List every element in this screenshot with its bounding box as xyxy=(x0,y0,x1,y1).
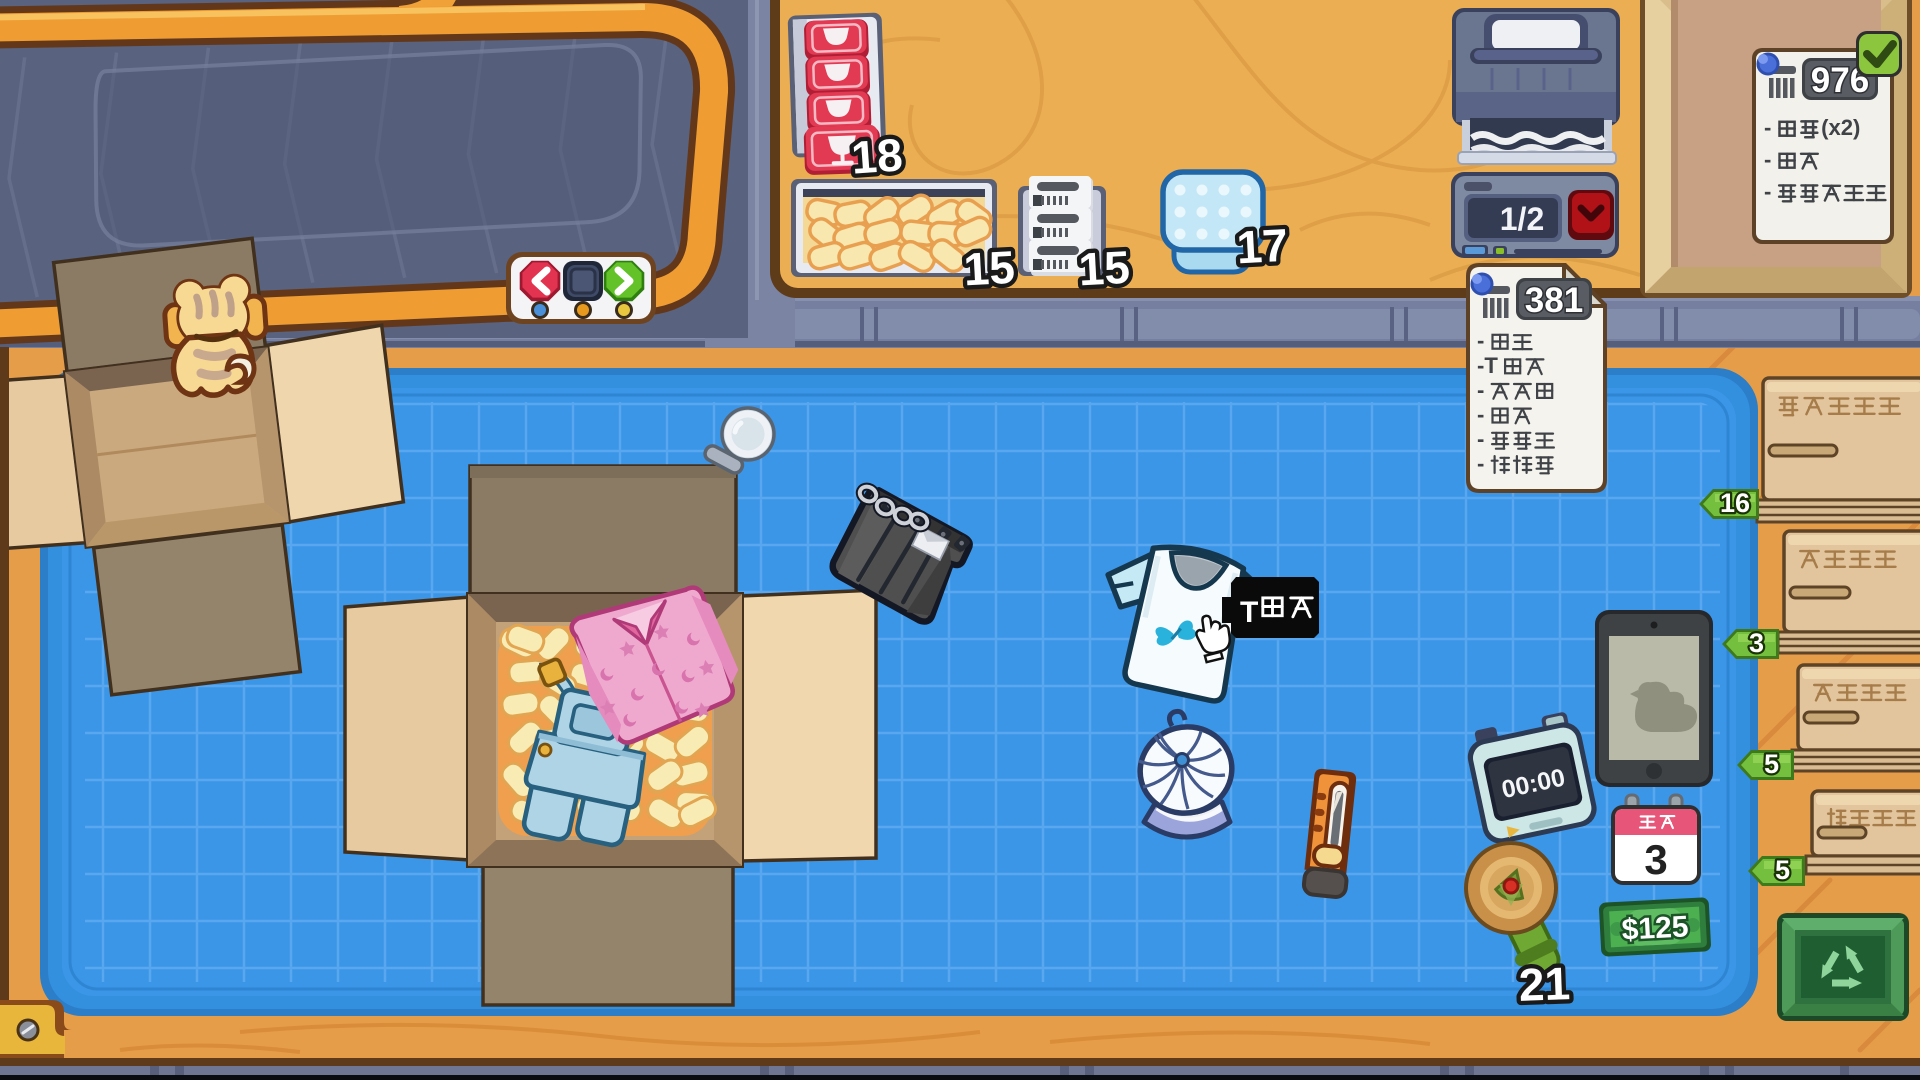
svg-text:-T: -T xyxy=(1477,353,1498,378)
svg-text:21: 21 xyxy=(1518,957,1571,1011)
svg-text:17: 17 xyxy=(1235,219,1289,274)
svg-text:-: - xyxy=(1764,179,1771,204)
svg-text:3: 3 xyxy=(1749,628,1764,658)
svg-text:5: 5 xyxy=(1775,855,1790,885)
svg-text:-: - xyxy=(1764,115,1771,140)
svg-text:16: 16 xyxy=(1720,488,1750,518)
svg-text:-: - xyxy=(1477,402,1484,427)
svg-text:-: - xyxy=(1477,451,1484,476)
svg-text:18: 18 xyxy=(850,128,905,183)
svg-text:$125: $125 xyxy=(1621,910,1689,946)
svg-text:3: 3 xyxy=(1644,836,1667,883)
svg-text:15: 15 xyxy=(962,241,1016,296)
svg-text:-: - xyxy=(1477,377,1484,402)
svg-text:381: 381 xyxy=(1525,281,1583,320)
svg-text:-: - xyxy=(1477,427,1484,452)
svg-text:-: - xyxy=(1477,328,1484,353)
svg-text:1/2: 1/2 xyxy=(1500,201,1544,237)
svg-text:15: 15 xyxy=(1077,241,1131,296)
svg-text:-: - xyxy=(1764,147,1771,172)
svg-text:(x2): (x2) xyxy=(1821,115,1860,140)
svg-text:5: 5 xyxy=(1764,749,1779,779)
svg-text:T: T xyxy=(1240,596,1258,629)
